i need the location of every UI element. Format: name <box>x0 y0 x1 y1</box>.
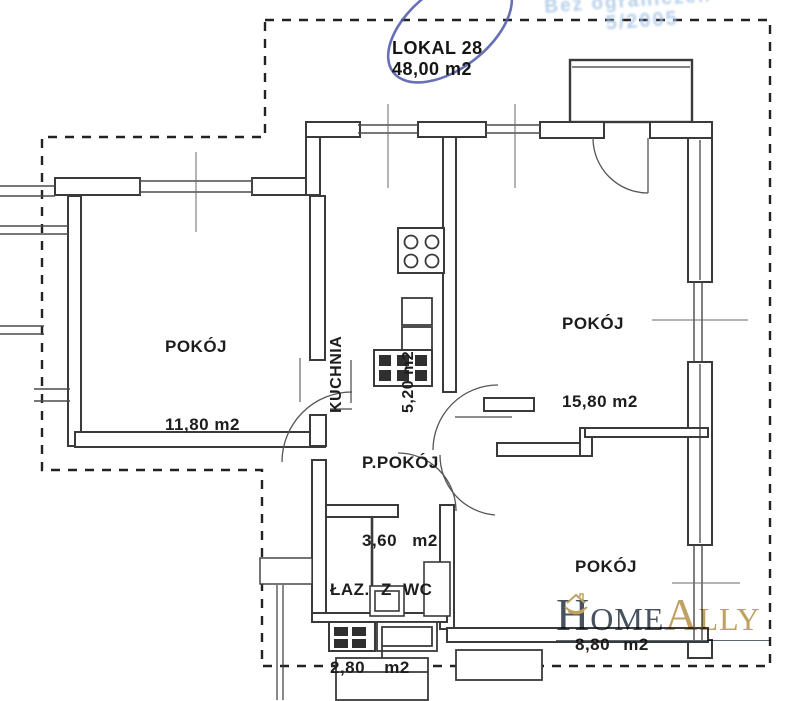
logo-rule-left <box>556 640 663 641</box>
room-area: 15,80 m2 <box>562 389 638 415</box>
room-name: P.POKÓJ <box>362 450 439 476</box>
plan-title-area: 48,00 m2 <box>392 59 483 80</box>
room-area: 11,80 m2 <box>165 412 240 438</box>
homeally-logo: HomeAlly <box>556 592 770 641</box>
plan-title-name: LOKAL 28 <box>392 38 483 59</box>
balcony <box>570 60 692 122</box>
room-label-pokoj-2: POKÓJ 15,80 m2 <box>562 259 638 467</box>
logo-rule-right <box>663 640 770 641</box>
room-label-kuchnia: KUCHNIA 5,20 m2 <box>277 293 469 413</box>
room-name: POKÓJ <box>575 554 649 580</box>
room-area: 5,20 m2 <box>397 293 421 413</box>
room-name: KUCHNIA <box>325 293 349 413</box>
room-name: POKÓJ <box>562 311 638 337</box>
room-name: ŁAZ. Z WC <box>330 577 432 603</box>
plan-title: LOKAL 28 48,00 m2 <box>392 38 483 80</box>
floorplan-page: Bez ograniczeń 5/2005 LOKAL 28 48,00 m2 … <box>0 0 794 701</box>
room-name: POKÓJ <box>165 334 240 360</box>
kitchen-stove <box>398 228 444 273</box>
homeally-house-in-hands-icon <box>559 592 593 618</box>
room-label-lazienka: ŁAZ. Z WC 2,80 m2 <box>330 525 432 701</box>
room-area: 2,80 m2 <box>330 655 432 681</box>
homeally-logo-rule <box>556 640 770 641</box>
room-label-pokoj-1: POKÓJ 11,80 m2 <box>165 282 240 490</box>
logo-ally-text: Ally <box>664 589 760 640</box>
